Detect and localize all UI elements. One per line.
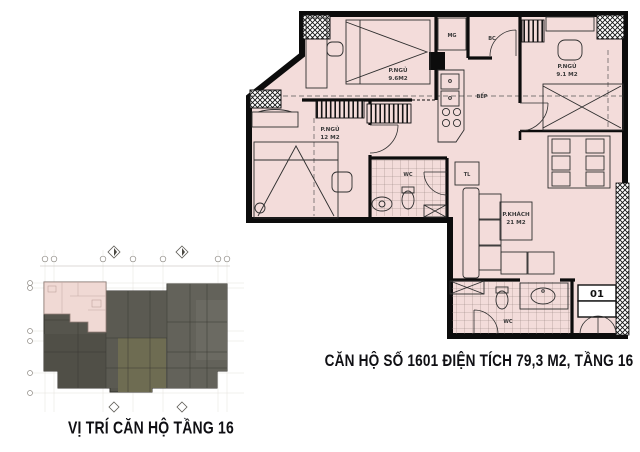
bedroom-top-left-area: 9.6M2: [388, 76, 407, 82]
grid-bubbles-left: [28, 281, 33, 396]
detail-caption: CĂN HỘ SỐ 1601 ĐIỆN TÍCH 79,3 M2, TẦNG 1…: [318, 351, 640, 370]
wc-upper-label: WC: [403, 172, 413, 178]
grid-bubbles-top: [42, 256, 230, 262]
building-key-plan: [22, 238, 248, 418]
bedroom-left-area: 12 M2: [320, 135, 339, 141]
wc-lower: WC: [450, 281, 570, 334]
bedroom-top-left-label: P.NGỦ: [388, 66, 407, 74]
balcony-label: BC: [488, 36, 496, 42]
fridge-label: TL: [464, 172, 471, 178]
laundry-label: MG: [447, 33, 456, 39]
floorplan-sheet: P.NGỦ 9.6M2 MG BẾP BC P.NGỦ: [0, 0, 640, 452]
overview-caption: VỊ TRÍ CĂN HỘ TẦNG 16: [40, 417, 262, 437]
living-label: P.KHÁCH: [502, 211, 530, 218]
wc-upper: WC: [372, 160, 447, 217]
apartment-detail-plan: P.NGỦ 9.6M2 MG BẾP BC P.NGỦ: [240, 0, 640, 345]
wc-lower-label: WC: [503, 319, 513, 325]
bedroom-right-label: P.NGỦ: [557, 62, 576, 70]
unit-number-badge: 01: [590, 289, 604, 300]
kitchen-label: BẾP: [477, 92, 488, 100]
bedroom-right-area: 9.1 M2: [556, 72, 577, 78]
living-area: 21 M2: [506, 220, 525, 226]
bedroom-left-label: P.NGỦ: [320, 125, 339, 133]
